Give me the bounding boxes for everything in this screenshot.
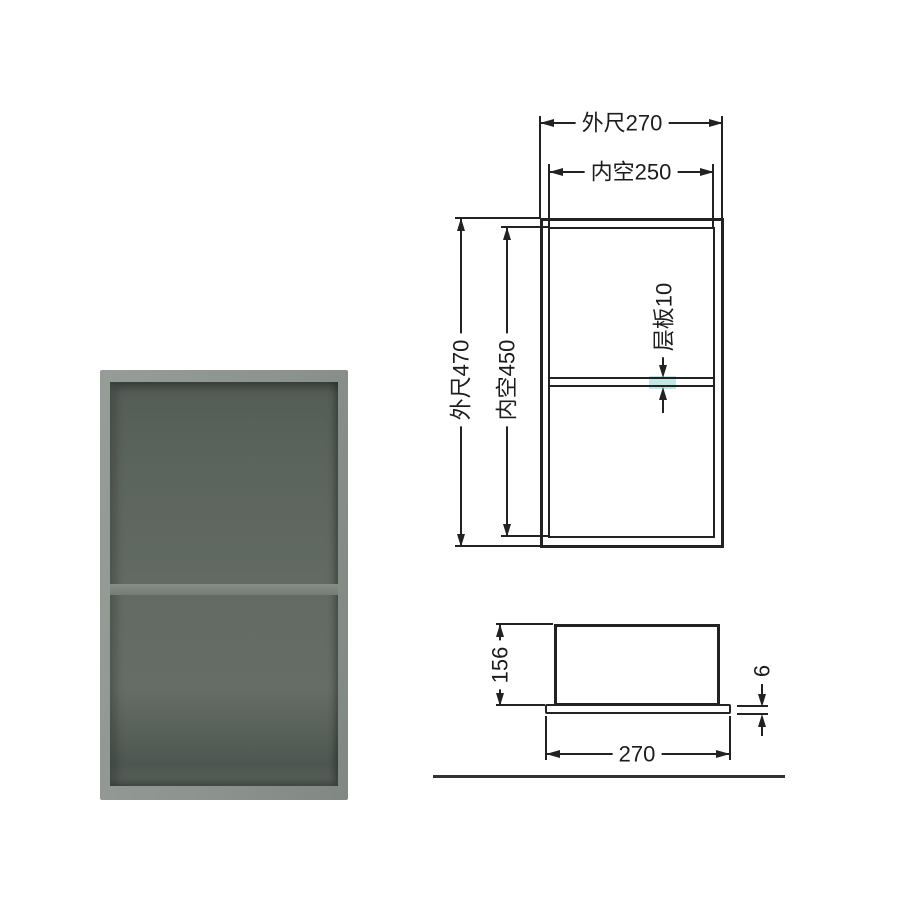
dim-thickness-line: [761, 725, 763, 736]
side-view-box: [554, 624, 720, 706]
arrow-down-icon: [457, 534, 465, 547]
arrow-right-icon: [716, 750, 730, 758]
dim-label-inner-width: 内空250: [585, 158, 678, 185]
arrow-left-icon: [540, 119, 554, 127]
dim-label-height: 156: [486, 641, 513, 690]
arrow-up-icon: [496, 624, 504, 637]
product-photo: [100, 370, 348, 800]
arrow-right-icon: [700, 168, 714, 176]
arrow-left-icon: [549, 168, 563, 176]
photo-middle-shelf: [110, 584, 338, 595]
arrow-right-icon: [709, 119, 723, 127]
extension-line: [721, 116, 723, 219]
arrow-up-icon: [503, 227, 511, 240]
extension-line: [455, 545, 540, 547]
dim-label-outer-height: 外尺470: [447, 334, 474, 427]
dim-label-inner-height: 内空450: [493, 334, 520, 427]
dim-label-flange-thickness: 6: [748, 659, 775, 683]
arrow-down-icon: [496, 693, 504, 706]
shelf-line-bottom: [550, 385, 713, 387]
arrow-down-icon: [659, 365, 667, 378]
extension-line: [455, 217, 540, 219]
side-view-flange: [545, 704, 731, 714]
shelf-line-top: [550, 377, 713, 379]
ground-line: [433, 775, 785, 778]
extension-line: [496, 623, 553, 625]
dim-label-outer-width: 外尺270: [576, 109, 669, 136]
arrow-left-icon: [546, 750, 560, 758]
photo-cabinet-interior: [110, 382, 338, 786]
front-view-inner-rect: [548, 227, 715, 538]
arrow-down-icon: [503, 524, 511, 537]
shelf-callout-line: [662, 398, 664, 413]
dim-label-shelf-thickness: 层板10: [650, 277, 677, 357]
arrow-up-icon: [457, 218, 465, 231]
arrow-down-icon: [758, 694, 766, 707]
dim-label-width: 270: [613, 740, 662, 767]
extension-line: [539, 116, 541, 219]
